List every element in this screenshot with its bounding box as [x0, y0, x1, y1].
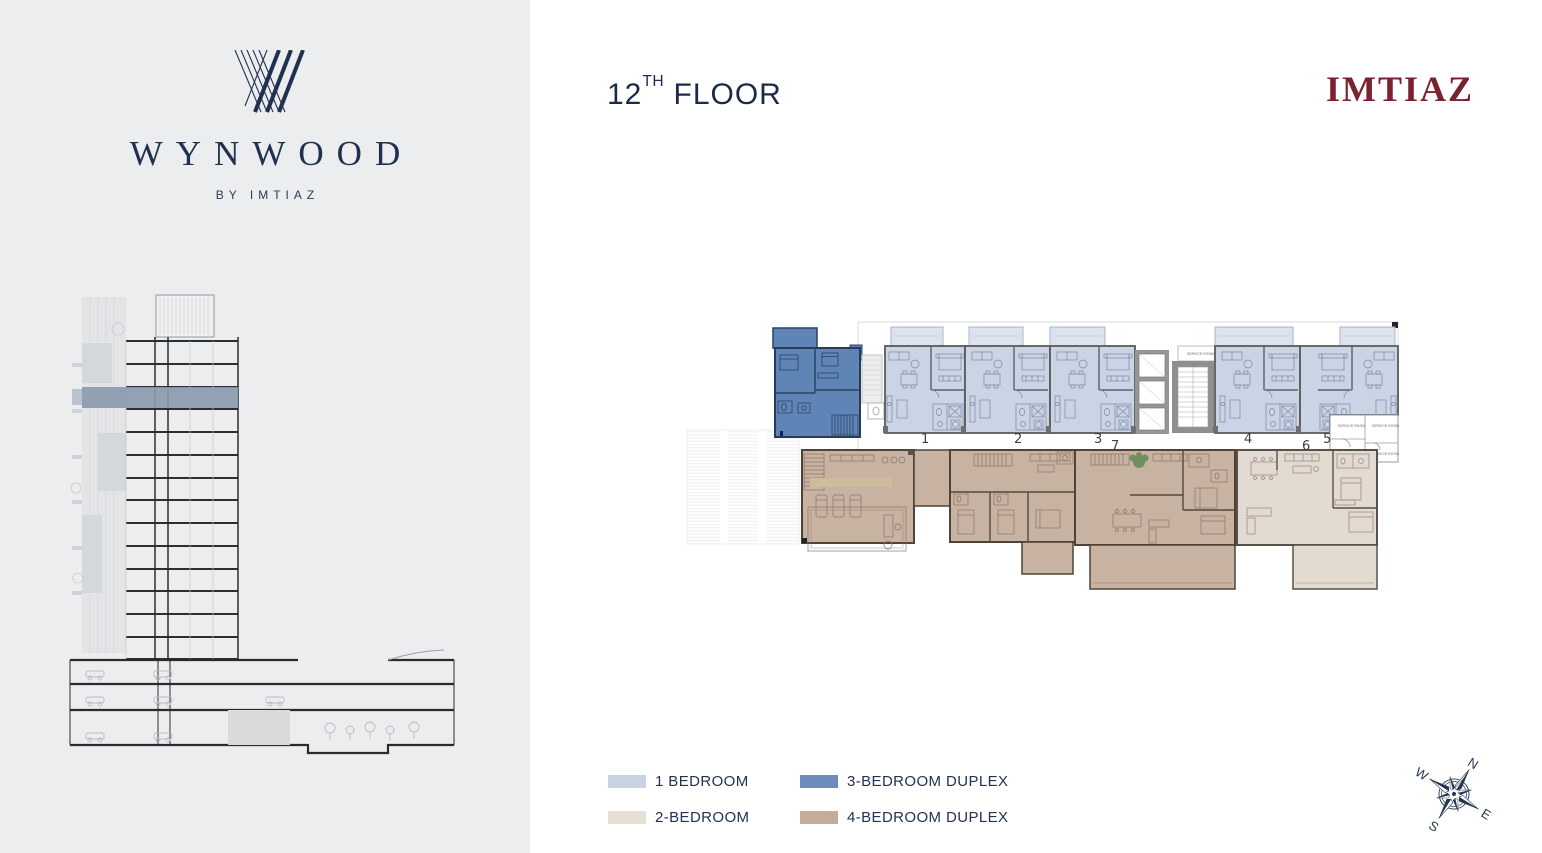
legend-item-4-bedroom-duplex: 4-BEDROOM DUPLEX: [800, 809, 1008, 826]
legend-swatch-two-bedroom: [608, 811, 646, 824]
service-room-label-2: SERVICE ROOM: [1338, 424, 1365, 428]
imtiaz-logo: IMTIAZ: [1326, 68, 1474, 110]
unit-number-4: 4: [1244, 432, 1252, 447]
legend-row-2: 2-BEDROOM 4-BEDROOM DUPLEX: [608, 799, 1128, 835]
brand-byline: BY IMTIAZ: [0, 188, 530, 202]
highlighted-floor-band: [72, 387, 238, 408]
service-room-label-3: SERVICE ROOM: [1372, 424, 1399, 428]
legend-label-2-bedroom: 2-BEDROOM: [655, 809, 749, 826]
unit-number-7: 7: [1111, 439, 1119, 454]
legend-label-4-bedroom-duplex: 4-BEDROOM DUPLEX: [847, 809, 1008, 826]
unit-2-shape: [965, 327, 1050, 433]
unit-6-shape: [1237, 450, 1377, 589]
unit-3-shape: [1050, 327, 1135, 433]
brand-wordmark: WYNWOOD: [0, 134, 530, 174]
floor-number: 12: [607, 78, 642, 111]
compass-west-label: W: [1413, 764, 1432, 784]
sidebar: WYNWOOD BY IMTIAZ: [0, 0, 530, 853]
unit-number-3: 3: [1094, 432, 1102, 447]
stair-core-left: [862, 355, 884, 419]
legend-label-3-bedroom-duplex: 3-BEDROOM DUPLEX: [847, 773, 1008, 790]
unit-4br-duplex-b-shape: [950, 450, 1075, 574]
connector-room: [914, 450, 950, 506]
unit-4br-duplex-a-shape: [802, 450, 914, 551]
louver-roof-area: [687, 430, 799, 544]
compass-south-label: S: [1426, 818, 1442, 835]
unit-7-shape: [1075, 450, 1235, 589]
tower-section: [126, 337, 238, 660]
compass-east-label: E: [1479, 805, 1495, 822]
legend: 1 BEDROOM 3-BEDROOM DUPLEX 2-BEDROOM 4-B…: [608, 763, 1128, 835]
floor-word: FLOOR: [664, 78, 782, 111]
unit-number-1: 1: [921, 432, 929, 447]
podium-section: [70, 650, 454, 753]
tree-glyphs: [325, 722, 419, 741]
page: WYNWOOD BY IMTIAZ: [0, 0, 1542, 853]
brand-block: WYNWOOD BY IMTIAZ: [0, 50, 530, 202]
floor-ordinal-suffix: TH: [642, 73, 664, 90]
rooftop-structure: [156, 295, 214, 337]
compass-rose-icon: N E S W: [1408, 748, 1500, 840]
unit-4-shape: [1215, 327, 1300, 433]
page-title: 12TH FLOOR: [607, 78, 782, 112]
legend-label-1-bedroom: 1 BEDROOM: [655, 773, 749, 790]
legend-swatch-four-bedroom-duplex: [800, 811, 838, 824]
legend-swatch-one-bedroom: [608, 775, 646, 788]
service-room-label-1: SERVICE ROOM: [1187, 352, 1214, 356]
legend-item-3-bedroom-duplex: 3-BEDROOM DUPLEX: [800, 773, 1008, 790]
legend-item-1-bedroom: 1 BEDROOM: [608, 773, 800, 790]
unit-number-5: 5: [1323, 432, 1331, 447]
elevation-background: [71, 297, 126, 653]
compass-north-label: N: [1465, 755, 1481, 773]
stair-core-mid: SERVICE ROOM: [1172, 346, 1215, 433]
legend-swatch-three-bedroom-duplex: [800, 775, 838, 788]
legend-item-2-bedroom: 2-BEDROOM: [608, 809, 800, 826]
wynwood-monogram-icon: [221, 50, 309, 120]
unit-number-6: 6: [1302, 439, 1310, 454]
legend-row-1: 1 BEDROOM 3-BEDROOM DUPLEX: [608, 763, 1128, 799]
floor-plan: SERVICE ROOM: [680, 315, 1405, 600]
unit-number-2: 2: [1014, 432, 1022, 447]
unit-3br-duplex-shape: [773, 328, 862, 437]
building-section-drawing: [58, 283, 468, 761]
elevator-core: [1135, 350, 1169, 434]
unit-1-shape: [885, 327, 965, 433]
